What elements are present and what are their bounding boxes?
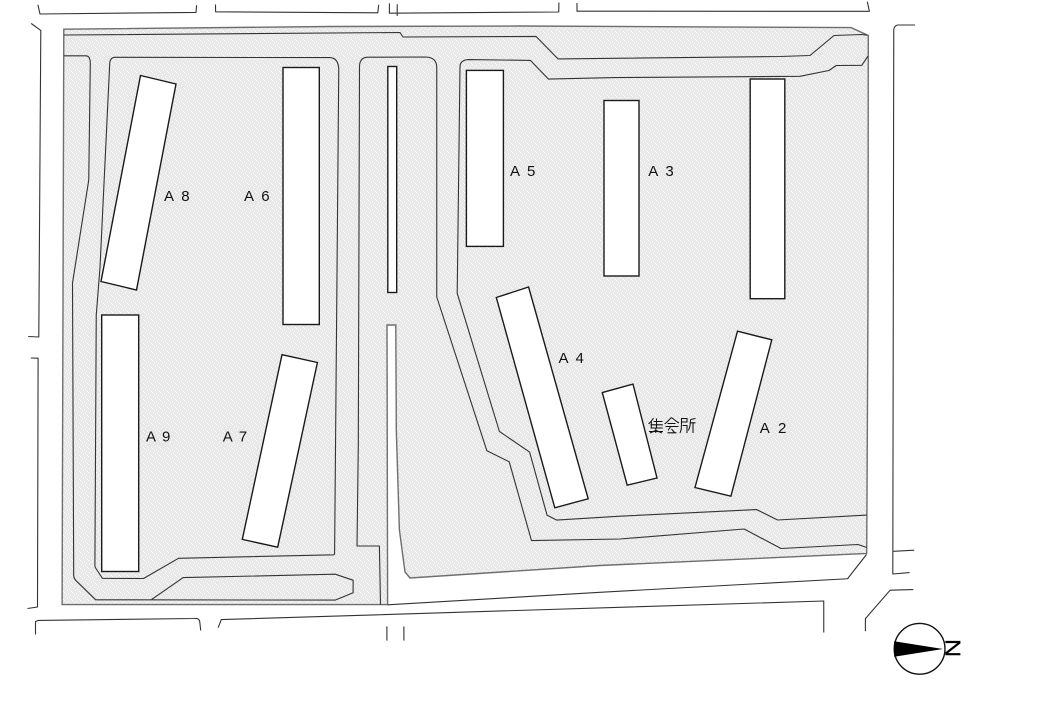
svg-text:8: 8 bbox=[181, 188, 189, 205]
svg-text:A: A bbox=[559, 350, 569, 367]
svg-text:9: 9 bbox=[162, 428, 170, 445]
svg-text:7: 7 bbox=[239, 428, 247, 445]
svg-text:A: A bbox=[146, 428, 156, 445]
svg-text:A: A bbox=[244, 188, 254, 205]
svg-text:5: 5 bbox=[527, 163, 535, 180]
svg-text:A: A bbox=[510, 163, 520, 180]
svg-text:A: A bbox=[760, 420, 770, 437]
svg-text:4: 4 bbox=[576, 350, 584, 367]
svg-text:A: A bbox=[648, 163, 658, 180]
svg-text:3: 3 bbox=[665, 163, 673, 180]
svg-text:2: 2 bbox=[778, 420, 786, 437]
svg-text:A: A bbox=[164, 188, 174, 205]
svg-text:6: 6 bbox=[261, 188, 269, 205]
svg-text:A: A bbox=[223, 428, 233, 445]
